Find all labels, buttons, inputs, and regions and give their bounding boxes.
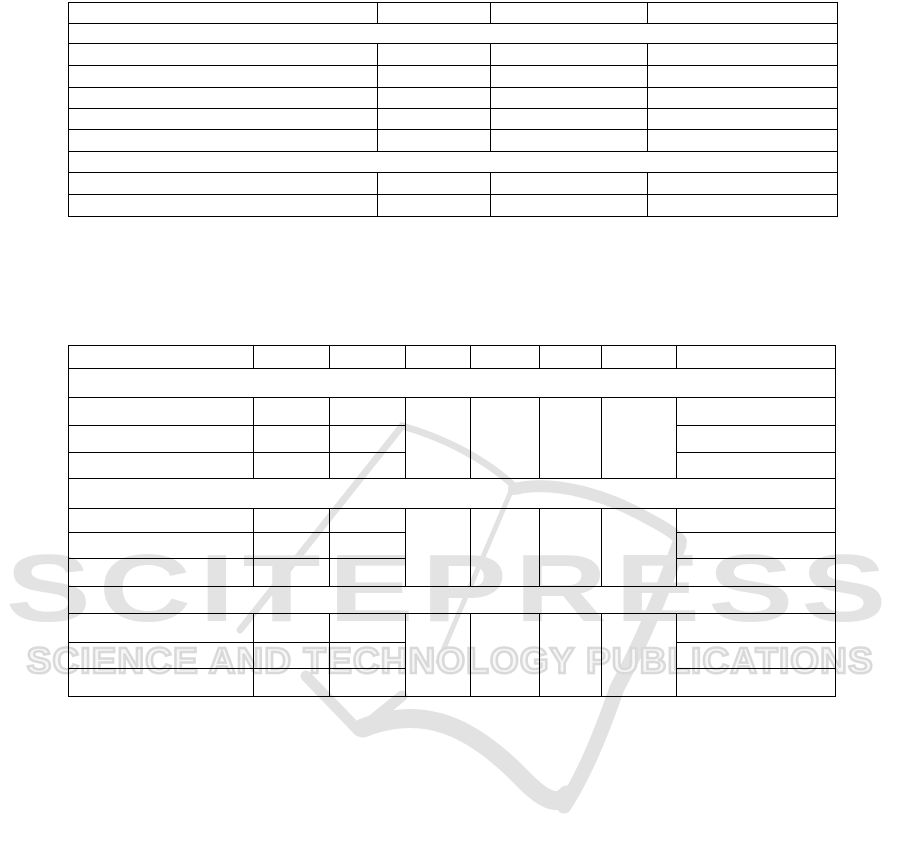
table-cell — [330, 614, 406, 643]
table-cell — [69, 109, 378, 130]
table-cell — [540, 398, 602, 479]
page: SCITEPRESS SCIENCE AND TECHNOLOGY PUBLIC… — [0, 0, 901, 850]
table-row — [69, 479, 836, 509]
table-cell — [254, 533, 330, 559]
table-cell — [69, 369, 836, 398]
table-cell — [677, 453, 836, 479]
table-cell — [254, 426, 330, 453]
table-cell — [254, 643, 330, 669]
table-cell — [677, 669, 836, 697]
table-cell — [254, 559, 330, 587]
table-cell — [69, 3, 378, 24]
table-cell — [254, 453, 330, 479]
table-cell — [491, 44, 648, 66]
table-row — [69, 369, 836, 398]
table-cell — [69, 587, 836, 614]
table-cell — [677, 533, 836, 559]
table-cell — [69, 453, 254, 479]
table-cell — [677, 398, 836, 426]
table-cell — [69, 398, 254, 426]
table-cell — [406, 398, 471, 479]
table-cell — [378, 3, 491, 24]
table-cell — [330, 509, 406, 533]
table-cell — [254, 346, 330, 369]
table-cell — [330, 533, 406, 559]
table-cell — [471, 614, 540, 697]
table-cell — [491, 3, 648, 24]
table-cell — [378, 173, 491, 195]
table-row — [69, 509, 836, 533]
table-cell — [69, 509, 254, 533]
table-cell — [69, 559, 254, 587]
table-cell — [648, 173, 838, 195]
table-cell — [491, 109, 648, 130]
table-cell — [69, 66, 378, 88]
table-cell — [648, 66, 838, 88]
table-cell — [491, 173, 648, 195]
table-cell — [406, 346, 471, 369]
table-cell — [69, 479, 836, 509]
table-cell — [602, 614, 677, 697]
table-cell — [69, 614, 254, 643]
table-row — [69, 24, 838, 44]
table-cell — [471, 398, 540, 479]
table-row — [69, 614, 836, 643]
table-cell — [330, 453, 406, 479]
table-cell — [378, 44, 491, 66]
table-cell — [540, 614, 602, 697]
table-cell — [69, 88, 378, 109]
table-cell — [378, 195, 491, 217]
table-row — [69, 130, 838, 152]
table-cell — [254, 614, 330, 643]
table-cell — [491, 88, 648, 109]
table-cell — [378, 88, 491, 109]
table-row — [69, 109, 838, 130]
table-cell — [69, 24, 838, 44]
table-cell — [540, 346, 602, 369]
table-cell — [677, 509, 836, 533]
table-cell — [648, 109, 838, 130]
table-row — [69, 587, 836, 614]
table-cell — [254, 669, 330, 697]
table-row — [69, 88, 838, 109]
table-cell — [491, 195, 648, 217]
table-row — [69, 346, 836, 369]
table-row — [69, 195, 838, 217]
table-cell — [471, 509, 540, 587]
table-cell — [491, 66, 648, 88]
table-cell — [602, 346, 677, 369]
table-row — [69, 44, 838, 66]
table-cell — [648, 195, 838, 217]
table-cell — [378, 109, 491, 130]
table-cell — [254, 398, 330, 426]
table-1 — [68, 2, 838, 217]
table-cell — [69, 426, 254, 453]
table-2 — [68, 345, 836, 697]
table-cell — [69, 533, 254, 559]
table-row — [69, 173, 838, 195]
table-cell — [540, 509, 602, 587]
table-cell — [378, 66, 491, 88]
table-row — [69, 152, 838, 173]
swoosh-lower-band — [363, 718, 567, 800]
table-row — [69, 398, 836, 426]
table-cell — [677, 643, 836, 669]
table-cell — [254, 509, 330, 533]
table-cell — [406, 614, 471, 697]
table-cell — [602, 509, 677, 587]
table-cell — [69, 44, 378, 66]
table-cell — [330, 559, 406, 587]
table-cell — [602, 398, 677, 479]
table-cell — [69, 643, 254, 669]
table-cell — [69, 195, 378, 217]
table-cell — [330, 643, 406, 669]
table-row — [69, 66, 838, 88]
table-cell — [648, 44, 838, 66]
table-cell — [330, 346, 406, 369]
table-cell — [330, 426, 406, 453]
table-cell — [677, 559, 836, 587]
table-cell — [648, 88, 838, 109]
table-cell — [677, 346, 836, 369]
table-cell — [330, 669, 406, 697]
table-cell — [69, 346, 254, 369]
table-cell — [69, 130, 378, 152]
table-cell — [677, 426, 836, 453]
table-cell — [378, 130, 491, 152]
table-cell — [677, 614, 836, 643]
table-cell — [69, 152, 838, 173]
table-cell — [406, 509, 471, 587]
table-cell — [69, 173, 378, 195]
table-row — [69, 3, 838, 24]
table-cell — [69, 669, 254, 697]
table-cell — [471, 346, 540, 369]
table-cell — [648, 3, 838, 24]
table-cell — [330, 398, 406, 426]
table-cell — [491, 130, 648, 152]
table-cell — [648, 130, 838, 152]
